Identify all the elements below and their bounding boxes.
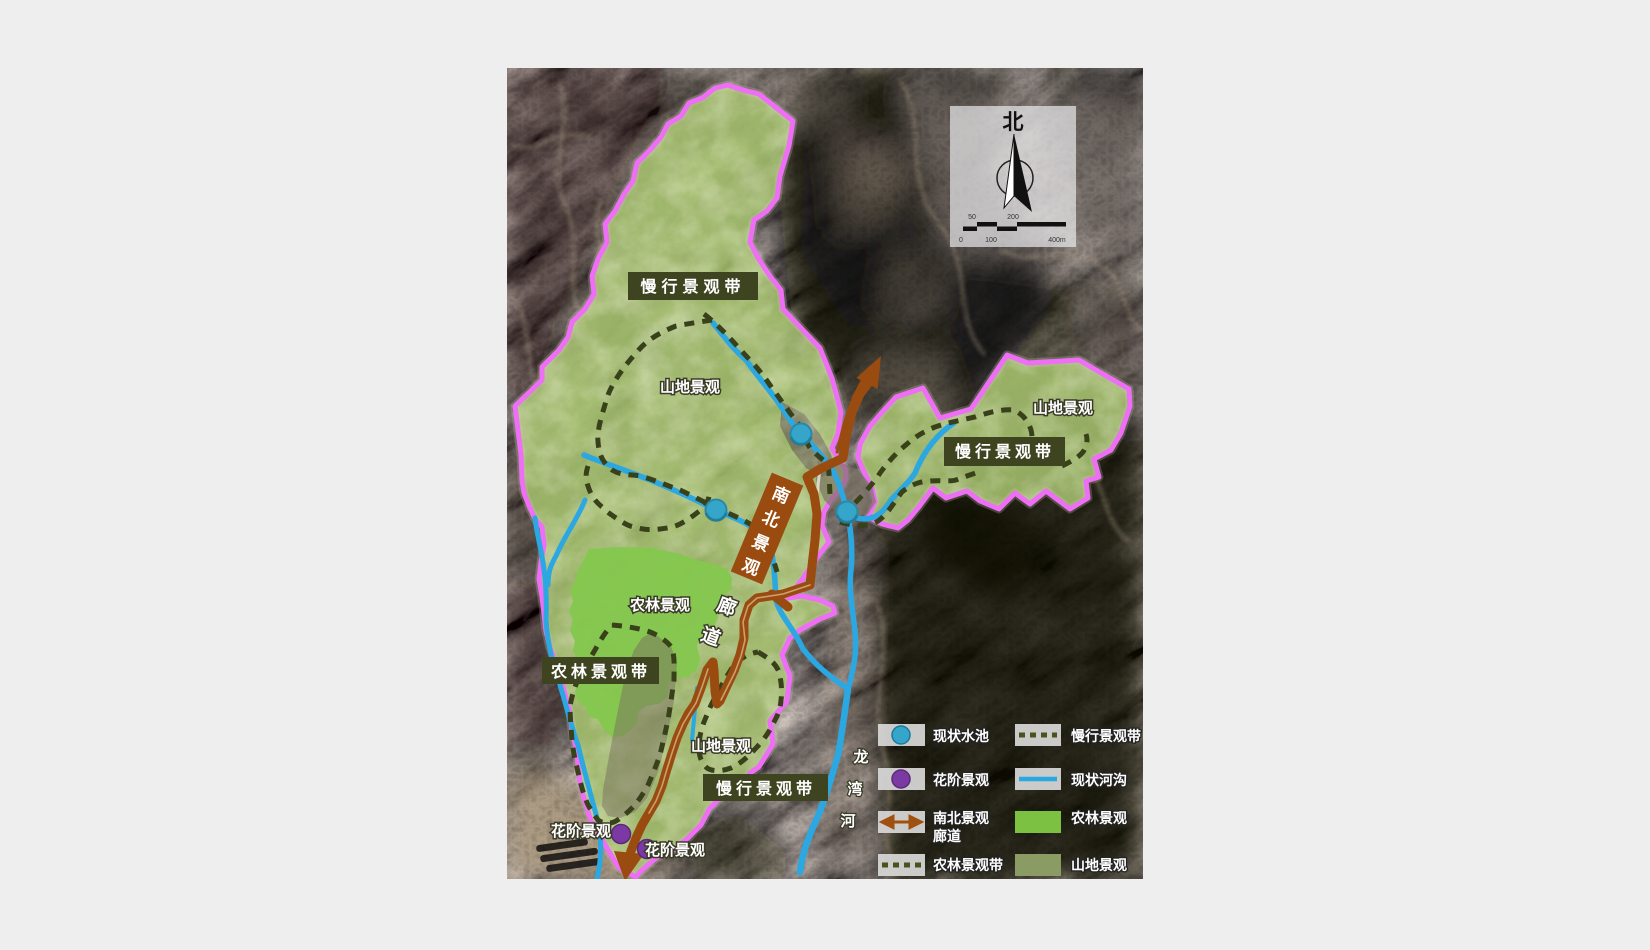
svg-text:山地景观: 山地景观: [1033, 399, 1093, 417]
svg-text:山地景观: 山地景观: [691, 737, 751, 755]
svg-text:慢行景观带: 慢行景观带: [955, 442, 1055, 461]
svg-text:400m: 400m: [1048, 237, 1066, 244]
svg-text:龙: 龙: [852, 748, 868, 766]
svg-text:花阶景观: 花阶景观: [551, 822, 611, 840]
svg-text:100: 100: [985, 237, 997, 244]
svg-text:慢行景观带: 慢行景观带: [1071, 728, 1141, 744]
svg-text:廊道: 廊道: [933, 828, 961, 844]
svg-text:慢行景观带: 慢行景观带: [716, 779, 816, 798]
svg-text:200: 200: [1007, 214, 1019, 221]
svg-text:农林景观带: 农林景观带: [932, 857, 1003, 873]
svg-text:花阶景观: 花阶景观: [933, 772, 989, 788]
svg-text:山地景观: 山地景观: [660, 378, 720, 396]
svg-text:50: 50: [968, 214, 976, 221]
svg-text:花阶景观: 花阶景观: [645, 841, 705, 859]
svg-text:山地景观: 山地景观: [1071, 857, 1127, 873]
svg-text:农林景观: 农林景观: [629, 596, 690, 614]
svg-text:现状河沟: 现状河沟: [1071, 772, 1127, 788]
svg-text:现状水池: 现状水池: [933, 728, 989, 744]
svg-text:农林景观: 农林景观: [1070, 810, 1127, 826]
svg-text:0: 0: [959, 237, 963, 244]
svg-text:河: 河: [840, 812, 855, 830]
svg-text:北: 北: [1003, 111, 1024, 134]
svg-text:南北景观: 南北景观: [933, 810, 989, 826]
svg-text:农林景观带: 农林景观带: [550, 662, 651, 681]
svg-text:慢行景观带: 慢行景观带: [640, 277, 745, 296]
svg-text:湾: 湾: [847, 780, 862, 798]
